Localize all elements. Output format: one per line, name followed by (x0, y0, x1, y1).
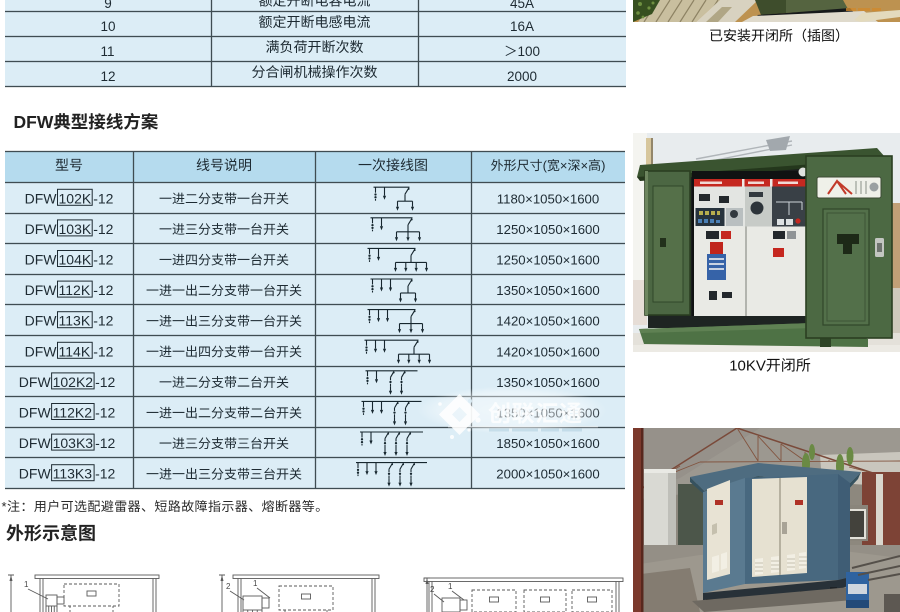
svg-text:2000×1050×1600: 2000×1050×1600 (496, 467, 599, 482)
svg-text:-12: -12 (93, 221, 113, 237)
svg-text:DFW: DFW (19, 405, 52, 421)
svg-text:-12: -12 (93, 343, 113, 359)
svg-text:-12: -12 (95, 374, 115, 390)
svg-text:113K: 113K (59, 313, 91, 329)
svg-text:DFW: DFW (25, 221, 58, 237)
svg-text:2: 2 (226, 582, 231, 591)
svg-text:×: × (560, 158, 568, 173)
svg-text:-12: -12 (93, 252, 113, 268)
svg-text:103K: 103K (59, 221, 92, 237)
svg-text:1: 1 (448, 582, 453, 591)
svg-text:114K: 114K (59, 343, 91, 359)
svg-text:-12: -12 (93, 282, 113, 298)
svg-text:104K: 104K (59, 252, 92, 268)
svg-text:16A: 16A (510, 19, 534, 34)
svg-text:-12: -12 (95, 435, 115, 451)
svg-text:10: 10 (101, 19, 116, 34)
svg-text:1420×1050×1600: 1420×1050×1600 (496, 314, 599, 329)
svg-text:DFW: DFW (25, 252, 58, 268)
svg-text:DFW: DFW (14, 112, 54, 132)
svg-text:1350×1050×1600: 1350×1050×1600 (496, 283, 599, 298)
svg-text:10KV: 10KV (729, 358, 766, 375)
svg-text:×: × (581, 158, 589, 173)
svg-text:1250×1050×1600: 1250×1050×1600 (496, 222, 599, 237)
svg-text:1250×1050×1600: 1250×1050×1600 (496, 253, 599, 268)
svg-text:1180×1050×1600: 1180×1050×1600 (497, 191, 599, 206)
svg-text:11: 11 (101, 44, 115, 59)
svg-text:DFW: DFW (19, 435, 52, 451)
svg-text:DFW: DFW (25, 282, 58, 298)
svg-text:1850×1050×1600: 1850×1050×1600 (496, 436, 599, 451)
svg-text:1: 1 (253, 579, 258, 588)
svg-text:-12: -12 (93, 313, 113, 329)
svg-text:102K: 102K (59, 190, 92, 206)
svg-text:DFW: DFW (25, 343, 58, 359)
svg-text:1420×1050×1600: 1420×1050×1600 (496, 344, 599, 359)
svg-text:112K: 112K (59, 282, 91, 298)
svg-text:DFW: DFW (19, 466, 52, 482)
svg-text:*: * (2, 499, 7, 514)
svg-text:2: 2 (430, 585, 435, 594)
svg-text:-12: -12 (93, 190, 113, 206)
svg-text:1: 1 (24, 580, 29, 589)
svg-text:12: 12 (101, 69, 116, 84)
svg-text:-12: -12 (95, 405, 115, 421)
svg-text:102K2: 102K2 (53, 374, 94, 390)
svg-text:DFW: DFW (25, 190, 58, 206)
svg-text:103K3: 103K3 (53, 435, 94, 451)
svg-text:DFW: DFW (19, 374, 52, 390)
svg-text:(: ( (543, 158, 548, 173)
svg-text:112K2: 112K2 (53, 405, 93, 421)
svg-text:DFW: DFW (25, 313, 58, 329)
svg-text:113K3: 113K3 (53, 466, 93, 482)
svg-text:45A: 45A (510, 0, 534, 11)
svg-text:-12: -12 (95, 466, 115, 482)
svg-text:100: 100 (518, 44, 541, 59)
svg-text:): ) (601, 158, 605, 173)
svg-text:9: 9 (104, 0, 112, 11)
svg-text:2000: 2000 (507, 69, 537, 84)
